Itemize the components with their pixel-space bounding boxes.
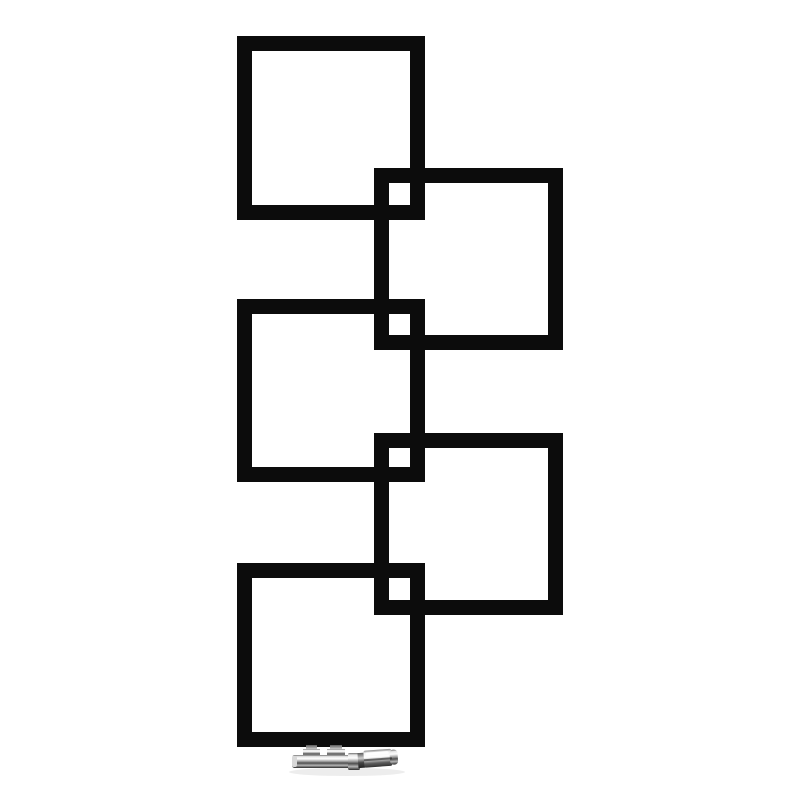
radiator-drawing xyxy=(0,0,800,800)
radiator-square-middle-left xyxy=(245,307,418,475)
radiator-valve xyxy=(289,745,405,776)
valve-pipe-endcap xyxy=(292,756,297,767)
radiator-square-top-left xyxy=(245,44,418,213)
radiator-square-top-right xyxy=(382,176,556,343)
valve-shadow xyxy=(289,768,405,776)
thermostatic-head xyxy=(357,748,398,768)
radiator-squares xyxy=(245,44,556,740)
valve-pipe xyxy=(292,755,352,768)
head-cap xyxy=(389,749,398,765)
radiator-product-image xyxy=(0,0,800,800)
radiator-square-bottom-left xyxy=(245,571,418,740)
radiator-square-middle-right xyxy=(382,441,556,608)
